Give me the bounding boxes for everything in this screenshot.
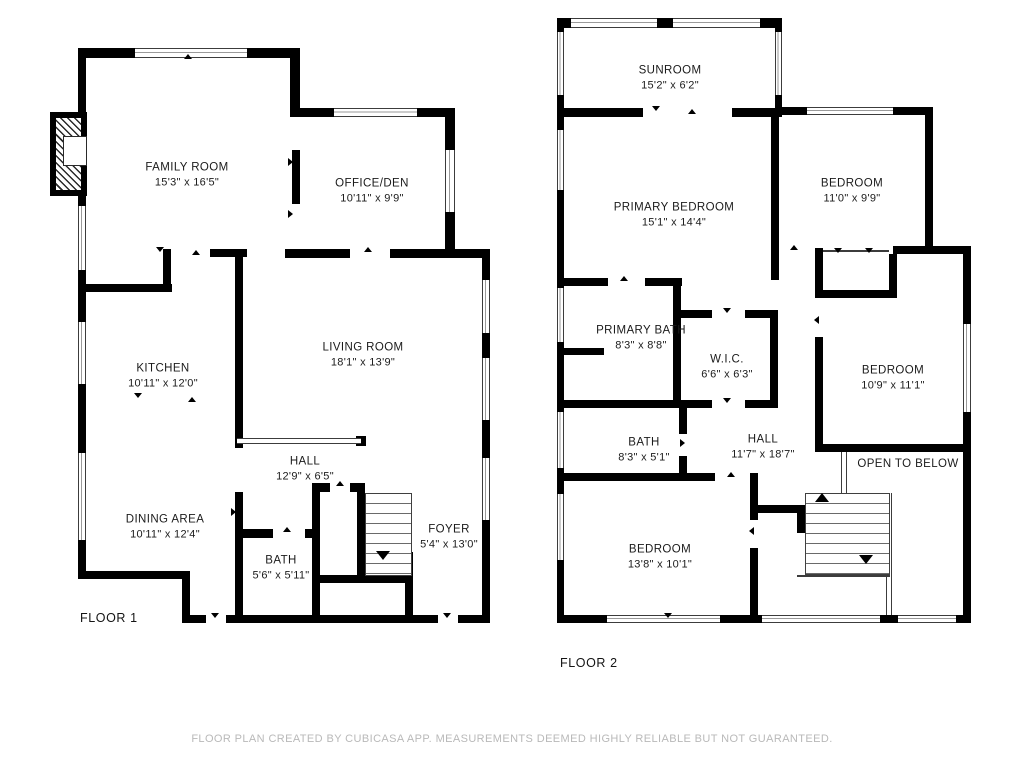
wall-segment	[78, 284, 172, 292]
floor-1-label: FLOOR 1	[80, 611, 138, 625]
window	[557, 130, 564, 190]
wall-segment	[312, 490, 320, 623]
wall-segment	[557, 278, 564, 288]
window	[762, 615, 880, 623]
door-marker	[620, 276, 628, 281]
wall-segment	[290, 108, 334, 117]
room-name: HALL	[731, 434, 794, 446]
door-marker	[889, 444, 897, 449]
wall-segment	[657, 18, 673, 28]
wall-segment	[390, 249, 490, 258]
wall-segment	[889, 254, 897, 298]
wall-segment	[956, 615, 971, 623]
window	[334, 108, 417, 117]
door-marker	[283, 527, 291, 532]
wall-segment	[564, 278, 608, 286]
room-dims: 10'9" x 11'1"	[861, 380, 924, 392]
door-marker	[211, 613, 219, 618]
room-dims: 8'3" x 8'8"	[596, 340, 686, 352]
staircase	[805, 493, 890, 575]
railing	[237, 438, 361, 444]
room-dims: 5'6" x 5'11"	[253, 570, 310, 582]
wall-segment	[963, 412, 971, 616]
thin-line	[823, 250, 889, 252]
wall-segment	[357, 490, 365, 576]
wall-segment	[557, 117, 564, 130]
room-dims: 10'11" x 12'0"	[128, 378, 198, 390]
wall-segment	[925, 115, 933, 246]
room-name: PRIMARY BEDROOM	[614, 202, 735, 214]
room-label-bedroom-2: BEDROOM 10'9" x 11'1"	[861, 365, 924, 392]
door-marker	[688, 109, 696, 114]
door-marker	[652, 106, 660, 111]
disclaimer-text: FLOOR PLAN CREATED BY CUBICASA APP. MEAS…	[0, 733, 1024, 745]
thin-line	[797, 575, 890, 577]
wall-segment	[557, 560, 564, 623]
door-marker	[482, 342, 487, 350]
room-label-sunroom: SUNROOM 15'2" x 6'2"	[639, 65, 702, 92]
wall-segment	[963, 254, 971, 324]
door-marker	[814, 316, 819, 324]
door-marker	[231, 508, 236, 516]
room-name: SUNROOM	[639, 65, 702, 77]
wall-segment	[557, 473, 715, 481]
door-marker	[749, 527, 754, 535]
room-label-primary-bedroom: PRIMARY BEDROOM 15'1" x 14'4"	[614, 202, 735, 229]
wall-segment	[78, 196, 86, 206]
wall-segment	[292, 150, 300, 204]
room-dims: 15'3" x 16'5"	[145, 177, 228, 189]
room-name: FAMILY ROOM	[145, 162, 228, 174]
room-dims: 6'6" x 6'3"	[701, 369, 752, 381]
door-marker	[192, 250, 200, 255]
room-name: BATH	[618, 437, 669, 449]
room-dims: 12'9" x 6'5"	[276, 471, 334, 483]
wall-segment	[482, 258, 490, 280]
wall-segment	[210, 249, 247, 257]
wall-segment	[775, 18, 782, 32]
stair-direction-arrow	[376, 551, 390, 560]
door-marker	[680, 439, 685, 447]
window	[482, 458, 490, 520]
wall-segment	[815, 290, 897, 298]
room-dims: 5'4" x 13'0"	[420, 539, 478, 551]
door-marker	[156, 247, 164, 252]
window	[78, 322, 86, 384]
wall-segment	[745, 310, 778, 318]
wall-segment	[78, 540, 86, 571]
room-label-family-room: FAMILY ROOM 15'3" x 16'5"	[145, 162, 228, 189]
door-marker	[723, 308, 731, 313]
wall-segment	[557, 615, 607, 623]
floor-2-label: FLOOR 2	[560, 656, 618, 670]
room-name: DINING AREA	[126, 514, 205, 526]
wall-segment	[78, 270, 86, 322]
room-name: BATH	[253, 555, 310, 567]
wall-segment	[815, 337, 823, 452]
window	[807, 107, 893, 115]
wall-segment	[285, 249, 350, 258]
room-label-office-den: OFFICE/DEN 10'11" x 9'9"	[335, 178, 409, 205]
door-marker	[288, 158, 293, 166]
floor-plan-canvas: FAMILY ROOM 15'3" x 16'5" OFFICE/DEN 10'…	[0, 0, 1024, 768]
wall-segment	[771, 115, 779, 280]
wall-segment	[78, 384, 86, 453]
room-name: BEDROOM	[628, 544, 692, 556]
room-dims: 13'8" x 10'1"	[628, 559, 692, 571]
wall-segment	[557, 108, 643, 117]
fireplace-firebox	[63, 136, 87, 166]
wall-segment	[235, 257, 243, 448]
window	[963, 324, 971, 412]
stair-direction-arrow	[859, 555, 873, 564]
room-name: KITCHEN	[128, 363, 198, 375]
wall-segment	[557, 190, 564, 278]
room-label-hall-f1: HALL 12'9" x 6'5"	[276, 456, 334, 483]
staircase	[365, 493, 412, 576]
door-marker	[790, 245, 798, 250]
wall-segment	[681, 310, 712, 318]
room-name: FOYER	[420, 524, 478, 536]
room-label-bath-f1: BATH 5'6" x 5'11"	[253, 555, 310, 582]
door-marker	[727, 472, 735, 477]
wall-segment	[893, 107, 933, 115]
wall-segment	[290, 48, 300, 114]
wall-segment	[320, 575, 412, 583]
room-dims: 10'11" x 9'9"	[335, 193, 409, 205]
wall-segment	[78, 48, 135, 58]
room-name: HALL	[276, 456, 334, 468]
room-dims: 15'1" x 14'4"	[614, 217, 735, 229]
room-name: LIVING ROOM	[322, 342, 403, 354]
wall-segment	[770, 318, 778, 408]
wall-segment	[557, 342, 564, 412]
wall-segment	[745, 400, 778, 408]
wall-segment	[750, 473, 758, 520]
door-marker	[336, 481, 344, 486]
room-label-bedroom-1: BEDROOM 11'0" x 9'9"	[821, 178, 883, 205]
room-label-open-to-below: OPEN TO BELOW	[857, 458, 958, 470]
room-dims: 15'2" x 6'2"	[639, 80, 702, 92]
room-label-bath-f2: BATH 8'3" x 5'1"	[618, 437, 669, 464]
room-dims: 10'11" x 12'4"	[126, 529, 205, 541]
stair-direction-arrow	[815, 493, 829, 502]
wall-segment	[797, 505, 805, 533]
room-name: OFFICE/DEN	[335, 178, 409, 190]
wall-segment	[235, 492, 243, 623]
window	[78, 453, 86, 540]
room-label-dining-area: DINING AREA 10'11" x 12'4"	[126, 514, 205, 541]
wall-segment	[445, 108, 455, 150]
room-dims: 18'1" x 13'9"	[322, 357, 403, 369]
wall-segment	[779, 107, 807, 115]
window	[571, 18, 657, 28]
room-label-kitchen: KITCHEN 10'11" x 12'0"	[128, 363, 198, 390]
room-name: OPEN TO BELOW	[857, 458, 958, 470]
room-label-hall-f2: HALL 11'7" x 18'7"	[731, 434, 794, 461]
room-name: BEDROOM	[821, 178, 883, 190]
room-dims: 11'0" x 9'9"	[821, 193, 883, 205]
door-marker	[188, 397, 196, 402]
window	[557, 412, 564, 468]
wall-segment	[880, 615, 898, 623]
wall-segment	[557, 18, 564, 32]
wall-segment	[893, 246, 971, 254]
room-dims: 8'3" x 5'1"	[618, 452, 669, 464]
window	[482, 358, 490, 420]
room-label-living-room: LIVING ROOM 18'1" x 13'9"	[322, 342, 403, 369]
wall-segment	[78, 571, 190, 579]
wall-segment	[243, 529, 273, 538]
window	[775, 32, 782, 95]
door-marker	[723, 398, 731, 403]
door-marker	[865, 248, 873, 253]
room-label-foyer: FOYER 5'4" x 13'0"	[420, 524, 478, 551]
wall-segment	[482, 520, 490, 623]
wall-segment	[78, 48, 86, 112]
window	[557, 288, 564, 342]
window	[482, 280, 490, 333]
room-dims: 11'7" x 18'7"	[731, 449, 794, 461]
room-name: W.I.C.	[701, 354, 752, 366]
window	[445, 150, 455, 212]
window	[557, 494, 564, 560]
door-marker	[443, 613, 451, 618]
window	[78, 206, 86, 270]
wall-segment	[557, 468, 564, 494]
room-name: BEDROOM	[861, 365, 924, 377]
door-marker	[364, 247, 372, 252]
wall-segment	[750, 548, 758, 623]
door-marker	[834, 248, 842, 253]
room-label-bedroom-3: BEDROOM 13'8" x 10'1"	[628, 544, 692, 571]
wall-segment	[679, 408, 687, 434]
window	[673, 18, 760, 28]
door-marker	[288, 210, 293, 218]
window	[898, 615, 956, 623]
wall-segment	[182, 615, 206, 623]
door-marker	[184, 54, 192, 59]
wall-segment	[720, 615, 762, 623]
room-label-wic: W.I.C. 6'6" x 6'3"	[701, 354, 752, 381]
room-label-primary-bath: PRIMARY BATH 8'3" x 8'8"	[596, 325, 686, 352]
wall-segment	[482, 420, 490, 458]
window	[557, 32, 564, 95]
wall-segment	[564, 400, 712, 408]
door-marker	[134, 393, 142, 398]
door-marker	[664, 613, 672, 618]
room-name: PRIMARY BATH	[596, 325, 686, 337]
